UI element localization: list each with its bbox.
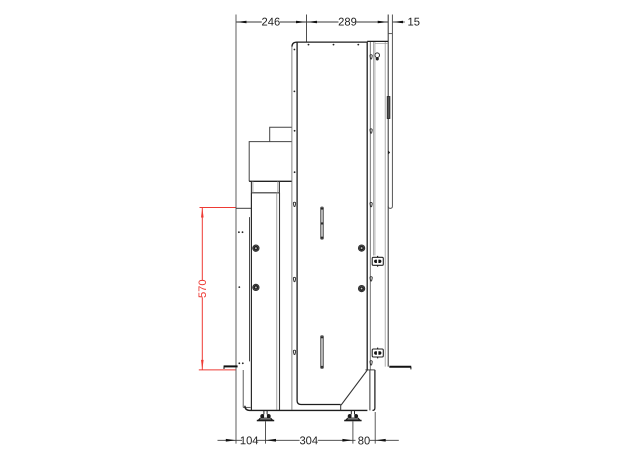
svg-text:80: 80	[358, 435, 370, 447]
svg-text:246: 246	[262, 16, 281, 28]
svg-text:15: 15	[407, 17, 419, 29]
svg-text:289: 289	[338, 17, 357, 29]
svg-text:570: 570	[197, 279, 209, 298]
svg-text:304: 304	[299, 435, 318, 447]
svg-text:104: 104	[240, 435, 259, 447]
